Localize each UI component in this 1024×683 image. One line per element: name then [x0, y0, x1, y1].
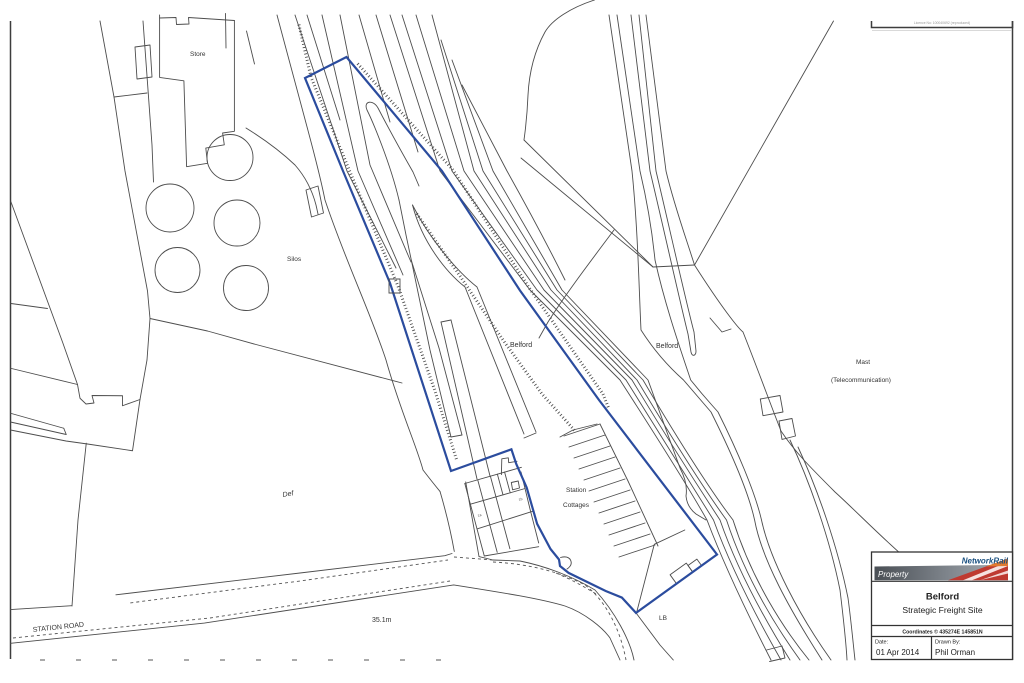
svg-text:Store: Store [190, 51, 206, 58]
svg-text:Belford: Belford [656, 343, 678, 350]
svg-text:Station: Station [566, 487, 587, 494]
svg-text:Date:: Date: [875, 640, 889, 646]
svg-text:Property: Property [878, 570, 909, 579]
svg-text:Belford: Belford [926, 592, 959, 603]
svg-text:Licence No: 100040692 (reprod: Licence No: 100040692 (reproduced) [914, 21, 970, 25]
svg-text:NetworkRail: NetworkRail [962, 557, 1009, 566]
svg-text:Mast: Mast [856, 359, 870, 366]
svg-text:Silos: Silos [287, 256, 302, 263]
svg-text:35.1m: 35.1m [372, 617, 392, 624]
svg-text:LB: LB [659, 615, 667, 622]
svg-text:01 Apr 2014: 01 Apr 2014 [876, 648, 920, 657]
svg-text:Cottages: Cottages [563, 502, 590, 509]
svg-text:Phil Orman: Phil Orman [935, 648, 975, 657]
svg-text:(Telecommunication): (Telecommunication) [831, 377, 891, 384]
svg-text:Coordinates © 435274E 14585: Coordinates © 435274E 145851N [902, 629, 982, 636]
svg-text:Strategic Freight Site: Strategic Freight Site [902, 605, 982, 615]
svg-text:Belford: Belford [510, 342, 532, 349]
svg-text:Drawn By:: Drawn By: [935, 640, 961, 646]
